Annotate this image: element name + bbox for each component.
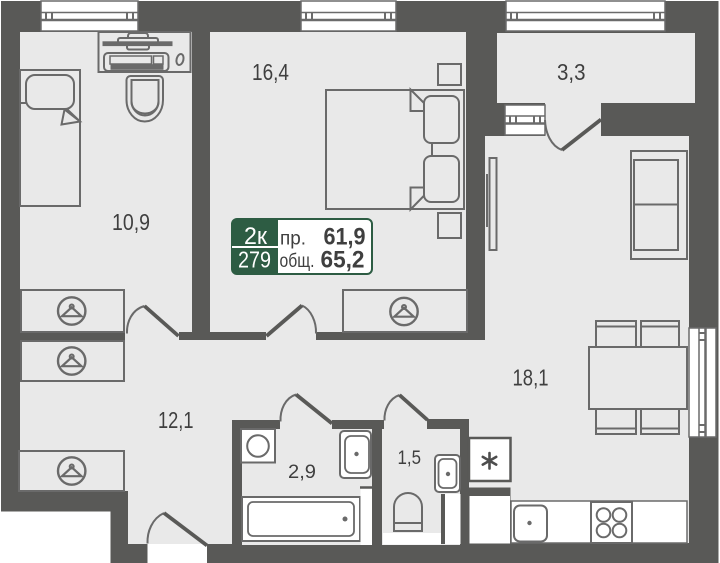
svg-text:65,2: 65,2 (321, 247, 365, 274)
svg-text:общ.: общ. (280, 251, 315, 272)
svg-text:16,4: 16,4 (252, 59, 289, 85)
svg-text:3,3: 3,3 (557, 59, 586, 85)
svg-text:2,9: 2,9 (288, 462, 316, 483)
svg-text:1,5: 1,5 (398, 448, 422, 469)
svg-text:пр.: пр. (280, 229, 306, 250)
svg-text:10,9: 10,9 (112, 209, 150, 235)
svg-text:12,1: 12,1 (158, 407, 194, 433)
svg-text:18,1: 18,1 (513, 365, 549, 391)
svg-text:279: 279 (238, 247, 271, 273)
